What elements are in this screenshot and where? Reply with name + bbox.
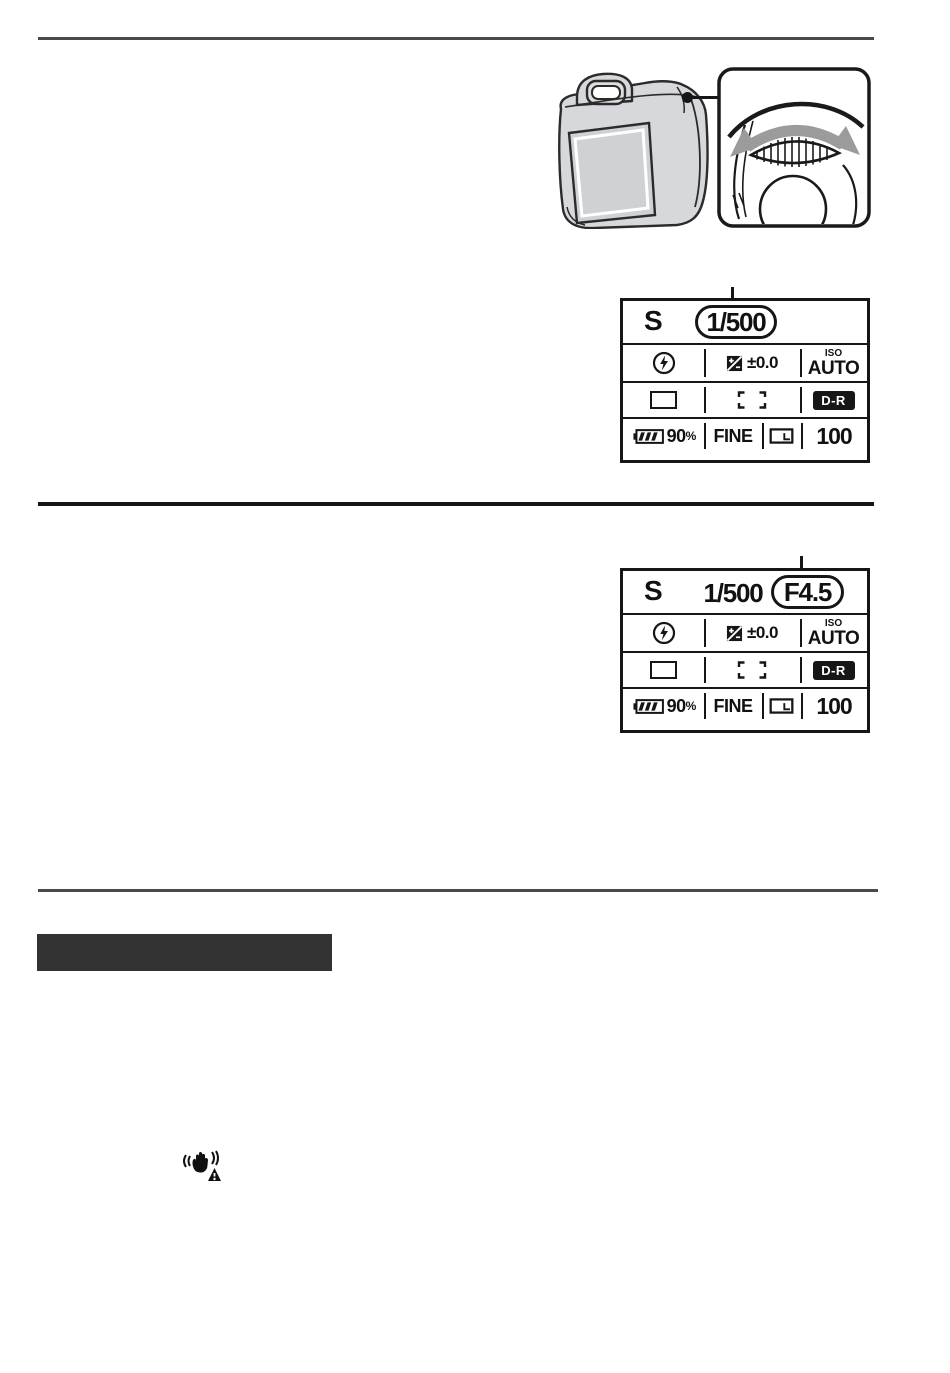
panel2-row3: D-R [623,651,867,687]
focus-area-brackets-icon [737,390,767,410]
panel1-row4: 90% FINE 100 [623,417,867,453]
ev-value: ±0.0 [747,623,778,643]
flash-mode-cell [623,345,704,381]
iso-cell: ISO AUTO [800,615,867,651]
remaining-shots-cell: 100 [801,419,867,453]
exposure-comp-cell: ±0.0 [704,615,800,651]
focus-area-cell [704,653,800,687]
top-divider-rule [38,37,874,40]
dr-badge: D-R [813,661,855,680]
dr-badge: D-R [813,391,855,410]
battery-cell: 90% [625,689,704,723]
iso-value: AUTO [808,629,859,648]
ev-value: ±0.0 [747,353,778,373]
manual-page: S 1/500 ±0.0 [0,0,950,1373]
shutter-speed-value: 1/500 [695,578,771,609]
mid-divider-rule [38,502,874,506]
lcd-status-panel-1: S 1/500 ±0.0 [620,298,870,463]
panel1-row3: D-R [623,381,867,417]
quality-cell: FINE [704,419,762,453]
battery-cell: 90% [625,419,704,453]
exposure-compensation-icon [726,625,743,642]
exposure-compensation-icon [726,355,743,372]
exposure-comp-cell: ±0.0 [704,345,800,381]
battery-level-icon [633,428,664,445]
shake-warning [181,1145,221,1183]
flash-auto-icon [652,351,676,375]
battery-percent-value: 90 [667,426,686,447]
mode-letter: S [644,305,662,337]
camera-illustration [525,57,715,229]
remaining-shots-value: 100 [816,693,851,720]
panel2-row2: ±0.0 ISO AUTO [623,613,867,651]
iso-label: ISO [825,619,842,629]
lcd-status-panel-2: S 1/500 F4.5 ±0.0 [620,568,870,733]
image-size-icon [769,428,794,444]
aperture-highlight-oval: F4.5 [771,575,844,609]
focus-area-brackets-icon [737,660,767,680]
panel1-row2: ±0.0 ISO AUTO [623,343,867,381]
image-size-cell [762,419,801,453]
aperture-value: F4.5 [784,577,831,608]
image-size-icon [769,698,794,714]
section-header-bar [37,934,332,971]
battery-level-icon [633,698,664,715]
panel2-row4: 90% FINE 100 [623,687,867,723]
battery-percent-symbol: % [686,699,697,713]
shutter-speed-value: 1/500 [706,307,765,338]
control-dial-rotation-icon [717,67,871,228]
remaining-shots-cell: 100 [801,689,867,723]
remaining-shots-value: 100 [816,423,851,450]
flash-mode-cell [623,615,704,651]
iso-value: AUTO [808,359,859,378]
drive-mode-cell [623,383,704,417]
callout-leader-line [687,96,720,99]
battery-percent-value: 90 [667,696,686,717]
mode-letter: S [644,575,662,607]
lower-divider-rule [38,889,878,892]
quality-value: FINE [713,426,752,447]
dial-callout-box [717,67,871,228]
quality-cell: FINE [704,689,762,723]
dynamic-range-cell: D-R [800,653,867,687]
iso-cell: ISO AUTO [800,345,867,381]
shutter-speed-highlight-oval: 1/500 [695,305,777,339]
single-shooting-icon [650,391,677,409]
iso-label: ISO [825,349,842,359]
panel1-exposure-row: S 1/500 [623,301,867,343]
flash-auto-icon [652,621,676,645]
drive-mode-cell [623,653,704,687]
single-shooting-icon [650,661,677,679]
camera-shake-warning-icon [181,1145,221,1183]
battery-percent-symbol: % [686,429,697,443]
panel2-exposure-row: S 1/500 F4.5 [623,571,867,613]
image-size-cell [762,689,801,723]
quality-value: FINE [713,696,752,717]
dynamic-range-cell: D-R [800,383,867,417]
dslr-rear-view-icon [525,57,715,229]
focus-area-cell [704,383,800,417]
